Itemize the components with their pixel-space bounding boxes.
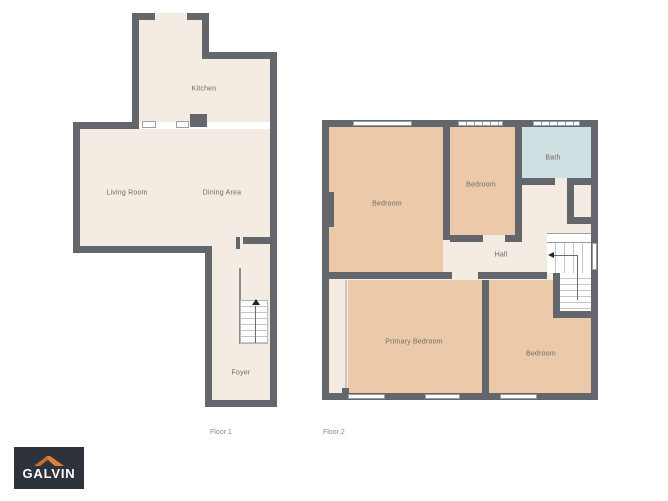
wall-segment xyxy=(443,127,450,240)
stair-direction-arrow-icon xyxy=(548,252,554,258)
wall-segment xyxy=(505,235,522,242)
wall-segment xyxy=(270,52,277,407)
staircase-floor2-lower xyxy=(560,273,591,311)
wall-segment xyxy=(567,217,591,224)
wall-segment xyxy=(73,122,80,253)
window xyxy=(348,394,385,399)
stair-path-line xyxy=(553,255,577,256)
room-label-bath: Bath xyxy=(545,155,560,162)
closet-divider xyxy=(345,280,347,390)
floor2-closet-strip-floor xyxy=(329,280,345,393)
chimney xyxy=(322,192,334,227)
window xyxy=(500,394,537,399)
wall-segment xyxy=(132,13,155,20)
wall-segment xyxy=(482,280,489,393)
room-label-foyer: Foyer xyxy=(232,370,251,377)
galvin-logo: GALVIN xyxy=(14,447,84,489)
room-label-hall: Hall xyxy=(495,252,508,259)
window xyxy=(533,121,580,126)
floor1-caption: Floor 1 xyxy=(210,429,232,436)
wall-segment xyxy=(478,272,547,279)
wall-segment xyxy=(202,52,277,59)
wall-segment xyxy=(567,185,574,217)
room-label-dining-area: Dining Area xyxy=(203,190,241,197)
room-label-living-room: Living Room xyxy=(106,190,147,197)
room-label-primary-bedroom: Primary Bedroom xyxy=(385,339,442,346)
wall-segment xyxy=(205,400,277,407)
kitchen-appliance xyxy=(190,114,207,127)
door-jamb xyxy=(236,237,240,249)
floor2-primary-bedroom-floor xyxy=(348,280,482,393)
floorplan-canvas: Kitchen Living Room Dining Area Foyer xyxy=(0,0,668,501)
wall-segment xyxy=(553,311,591,318)
wall-segment xyxy=(567,178,591,185)
kitchen-counter xyxy=(176,121,189,128)
kitchen-counter xyxy=(142,121,156,128)
stair-direction-arrow-icon xyxy=(252,299,260,305)
floor1-living-dining-floor xyxy=(80,129,270,246)
wall-segment xyxy=(522,178,555,185)
logo-text: GALVIN xyxy=(23,467,76,480)
wall-segment xyxy=(132,13,139,129)
window xyxy=(592,243,597,270)
stair-landing xyxy=(547,233,591,243)
stair-path-line xyxy=(577,255,578,300)
staircase-floor1 xyxy=(240,300,268,344)
floor2-bedroom1-floor xyxy=(329,127,443,272)
window xyxy=(353,121,412,126)
roof-icon xyxy=(34,456,64,466)
room-label-bedroom: Bedroom xyxy=(526,351,556,358)
wall-segment xyxy=(450,235,483,242)
floor1-kitchen-floor xyxy=(139,20,202,122)
wall-segment xyxy=(205,246,212,407)
floor1-kitchen-opening xyxy=(155,13,187,20)
staircase-floor2-upper xyxy=(547,243,591,273)
wall-segment xyxy=(515,127,522,242)
floor2-bath-floor xyxy=(522,127,591,178)
room-label-kitchen: Kitchen xyxy=(192,86,217,93)
room-label-bedroom: Bedroom xyxy=(466,182,496,189)
window xyxy=(425,394,460,399)
stair-path-line xyxy=(255,306,256,343)
window xyxy=(458,121,503,126)
wall-segment xyxy=(322,120,329,400)
room-label-bedroom: Bedroom xyxy=(372,201,402,208)
wall-segment xyxy=(73,122,139,129)
floor2-caption: Floor 2 xyxy=(323,429,345,436)
wall-segment xyxy=(329,272,452,279)
wall-segment xyxy=(73,246,212,253)
wall-segment xyxy=(243,237,277,244)
